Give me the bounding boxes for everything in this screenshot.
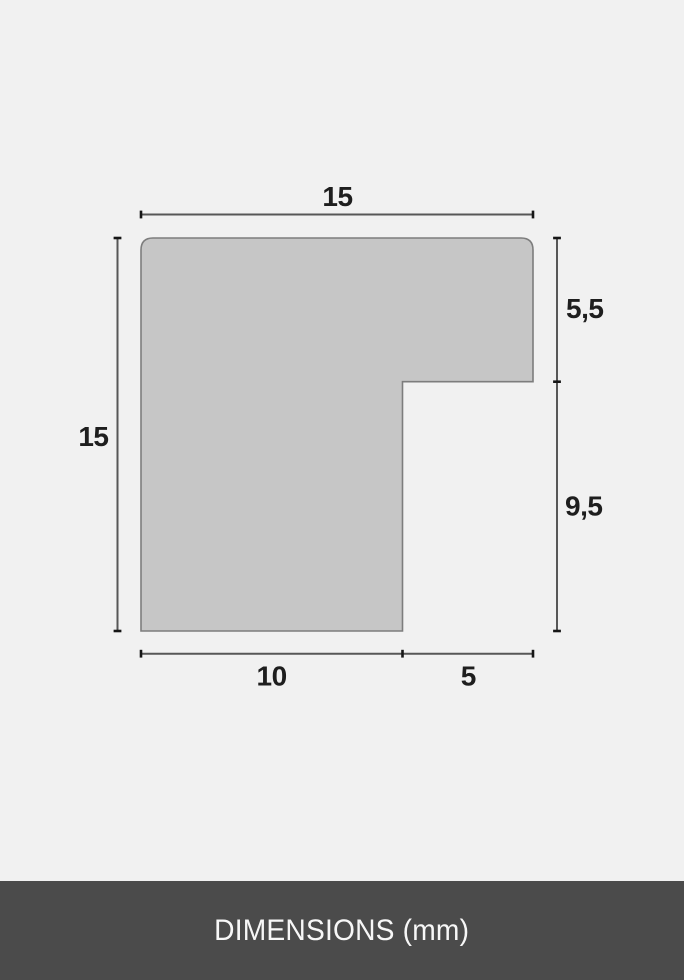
svg-text:15: 15	[322, 181, 352, 212]
svg-text:5: 5	[461, 661, 476, 692]
svg-text:5,5: 5,5	[566, 293, 603, 324]
svg-text:15: 15	[78, 421, 108, 452]
svg-text:10: 10	[257, 661, 287, 692]
svg-text:9,5: 9,5	[565, 491, 602, 522]
